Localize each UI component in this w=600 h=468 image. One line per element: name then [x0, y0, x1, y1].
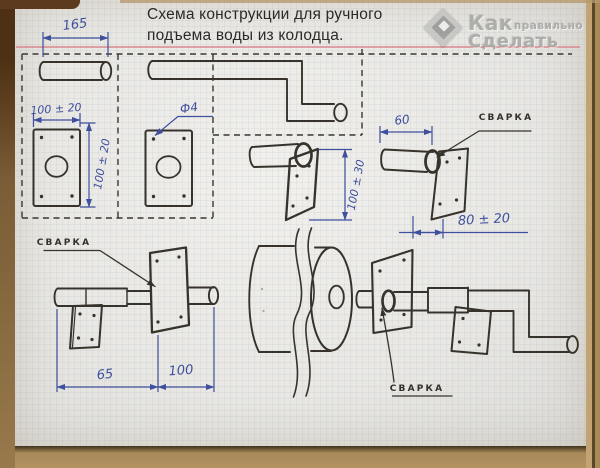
table-surface-top-edge: [120, 0, 600, 3]
pipe-plate-bracket-middle: [250, 144, 318, 221]
table-surface-right: [586, 0, 600, 468]
axle-assembly-bottom-left: [55, 248, 219, 349]
mount-plate-1: [34, 130, 81, 207]
stub-bracket-top-right: [381, 149, 468, 220]
photo-of-sketch: Схема конструкции для ручного подъема во…: [0, 0, 600, 468]
dim-hole-diameter: Ф4: [179, 100, 199, 116]
drum: [249, 228, 352, 397]
drawing-canvas: [0, 0, 600, 468]
dim-axle-left-length: 65: [96, 367, 114, 383]
weld-label-top-right: СВАРКА: [479, 113, 534, 123]
handle-pipe-blank: [40, 62, 112, 80]
watermark-diamond-logo-icon: [424, 8, 464, 48]
table-surface-top-left-corner: [0, 0, 80, 9]
mount-plate-2: [146, 131, 193, 207]
table-surface-bottom: [0, 446, 600, 468]
dim-handle-pipe-length: 165: [62, 16, 88, 34]
title-line-1: Схема конструкции для ручного: [147, 4, 382, 25]
crank-pipe-blank: [148, 61, 347, 121]
weld-leader-lines: [44, 131, 531, 396]
watermark-word-bottom: Сделать: [468, 31, 559, 52]
dim-bracket-offset: 80 ± 20: [458, 211, 511, 229]
dimension-lines: [34, 32, 529, 392]
table-surface-left: [0, 0, 15, 468]
site-watermark: Как правильно Сделать: [418, 6, 598, 52]
weld-ellipse-bottom-right: [383, 291, 395, 312]
image-title: Схема конструкции для ручного подъема во…: [147, 4, 382, 46]
title-line-2: подъема воды из колодца.: [147, 25, 382, 46]
crank-assembly-bottom-right: [356, 250, 578, 354]
weld-label-bottom-left: СВАРКА: [37, 238, 92, 248]
dim-axle-right-length: 100: [168, 363, 194, 380]
weld-label-bottom-right: СВАРКА: [390, 384, 445, 394]
dashed-group-boxes: [22, 49, 572, 218]
dim-stub-pipe-length: 60: [394, 112, 411, 128]
